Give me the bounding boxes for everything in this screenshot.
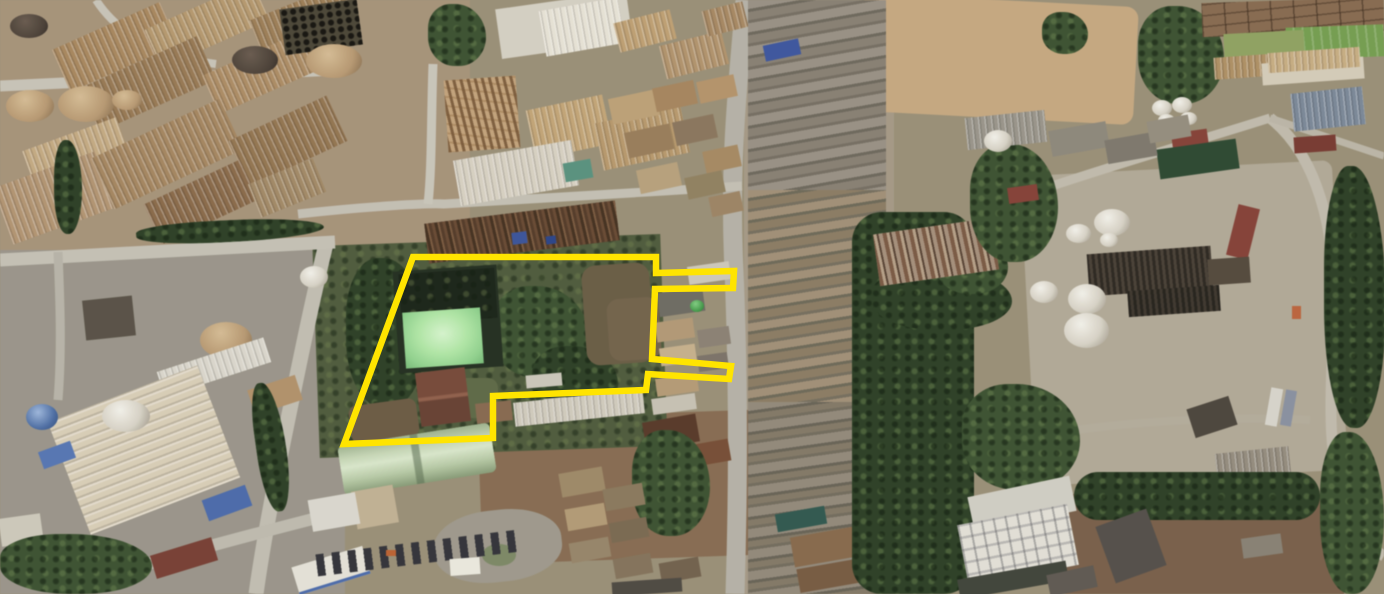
parcel-annotation-overlay: [0, 0, 1384, 594]
parcel-boundary-polygon[interactable]: [344, 257, 734, 444]
satellite-map-canvas[interactable]: [0, 0, 1384, 594]
